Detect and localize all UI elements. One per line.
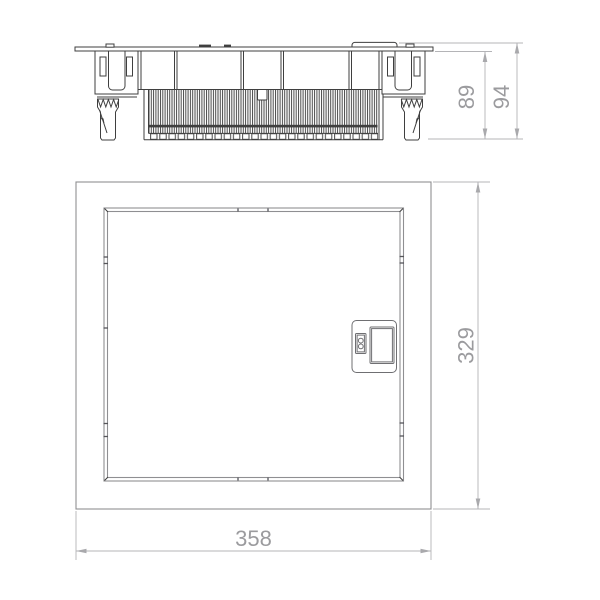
- dim-height: 329: [433, 182, 490, 509]
- door-latch: [352, 321, 397, 373]
- arrowhead: [483, 52, 488, 63]
- clip-slot: [127, 57, 133, 76]
- flange: [75, 47, 433, 51]
- flange-tab: [106, 44, 114, 47]
- latch-handle: [370, 327, 394, 364]
- enclosure-body: [137, 51, 383, 90]
- comb-base-strip: [150, 133, 378, 139]
- dim-width-label: 358: [235, 526, 272, 551]
- flange-pad: [352, 42, 397, 47]
- mounting-clip-right: [382, 51, 425, 140]
- clip-center-slot: [109, 51, 126, 90]
- arrowhead: [483, 129, 488, 140]
- comb-dark-band: [149, 125, 378, 128]
- arrowhead: [421, 549, 432, 554]
- dim-width: 358: [76, 511, 431, 560]
- arrowhead: [76, 549, 87, 554]
- dim-height-label: 329: [454, 327, 479, 364]
- front-view: [76, 182, 431, 509]
- mounting-clip-left: [95, 51, 138, 140]
- flange-tab: [406, 44, 414, 47]
- arrowhead: [476, 182, 481, 193]
- arrowhead: [515, 129, 520, 140]
- comb-center-notch: [258, 90, 268, 101]
- dim-inner-height-label: 89: [454, 85, 479, 109]
- clip-slot: [100, 57, 106, 76]
- arrowhead: [515, 43, 520, 54]
- dim-inner-height: 89: [435, 52, 492, 140]
- dim-total-height-label: 94: [489, 85, 514, 109]
- flange-slot: [224, 45, 231, 47]
- flange-slot: [199, 45, 211, 47]
- arrowhead: [476, 499, 481, 510]
- side-view: [75, 42, 433, 140]
- dimension-drawing: 94 89: [0, 0, 600, 600]
